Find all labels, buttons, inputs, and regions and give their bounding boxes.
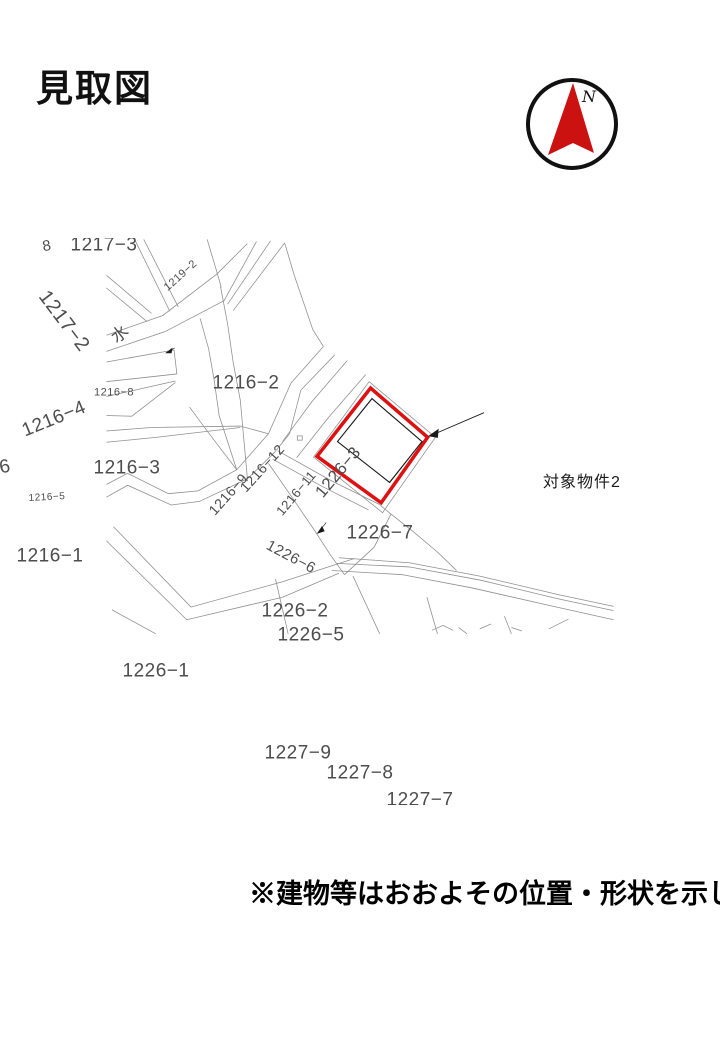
highlighted-parcel-label: 1226−7 — [347, 524, 414, 543]
label-arrow-head-icon — [318, 527, 324, 533]
parcel-label-1227-9: 1227−9 — [265, 744, 332, 763]
north-label: N — [581, 87, 597, 106]
parcel-label-1216-8: 1216−8 — [94, 388, 134, 399]
parcel-label-1227-8: 1227−8 — [327, 764, 394, 783]
cadastral-map: 1217−3 8 1219−2 1217−2 水 1216−2 1216−8 1… — [0, 238, 720, 805]
parcel-label-1216-2: 1216−2 — [213, 374, 280, 393]
north-compass: N — [522, 74, 622, 174]
parcel-label-1227-7: 1227−7 — [387, 791, 454, 806]
target-property-label: 対象物件2 — [543, 475, 621, 491]
road-edge — [339, 558, 614, 607]
parcel-label-1226-1: 1226−1 — [123, 662, 190, 681]
footnote: ※建物等はおおよその位置・形状を示している。 — [249, 872, 720, 911]
small-structure-marker — [297, 436, 302, 440]
road-edge — [113, 527, 354, 607]
parcel-label-1216-1: 1216−1 — [17, 547, 84, 566]
page-title: 見取図 — [36, 58, 153, 112]
label-arrow-head-icon — [166, 349, 172, 353]
sketch-map-page: 見取図 N — [0, 0, 720, 1040]
parcel-label-1226-2: 1226−2 — [262, 602, 329, 621]
parcel-label-1216-5: 1216−5 — [28, 492, 65, 504]
parcel-label-1216-3: 1216−3 — [94, 459, 161, 478]
parcel-label-1217-3: 1217−3 — [71, 238, 138, 255]
target-arrow-line — [433, 413, 484, 435]
road-edge — [332, 570, 614, 619]
parcel-label-1226-5: 1226−5 — [278, 626, 345, 645]
waterway-upper-edge — [106, 244, 247, 336]
map-linework — [0, 238, 720, 805]
parcel-boundaries — [106, 239, 613, 633]
